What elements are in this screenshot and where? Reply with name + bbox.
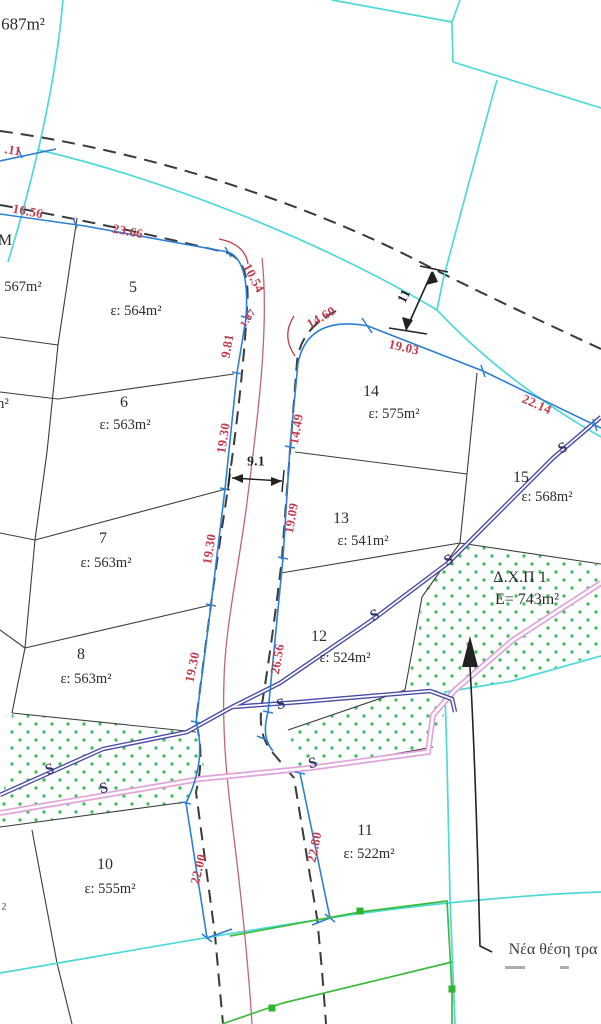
frontage-ticks <box>18 148 597 942</box>
road-centerline <box>219 239 295 1024</box>
fence-node-icon <box>449 986 456 993</box>
frontage-lines-blue <box>0 148 601 942</box>
cadastral-subdivision-plan: .1116.5623.6610.541.879.8119.3019.3019.3… <box>0 0 601 1024</box>
fence-node-icon <box>357 908 364 915</box>
arrowhead-left-icon <box>232 474 243 483</box>
arrowhead-right-icon <box>271 477 282 486</box>
arrowhead-up-icon <box>426 271 438 285</box>
plan-linework <box>0 0 601 1024</box>
cadastral-lines-cyan <box>0 0 601 1024</box>
stipple-areas <box>0 543 601 827</box>
corner-arc-icon <box>288 316 295 356</box>
note-cutoff-fragment <box>560 966 569 969</box>
note-cutoff-fragment <box>505 966 525 969</box>
leader-line <box>470 667 492 952</box>
fence-node-icon <box>269 1005 276 1012</box>
green-boundary-line <box>222 901 456 1024</box>
